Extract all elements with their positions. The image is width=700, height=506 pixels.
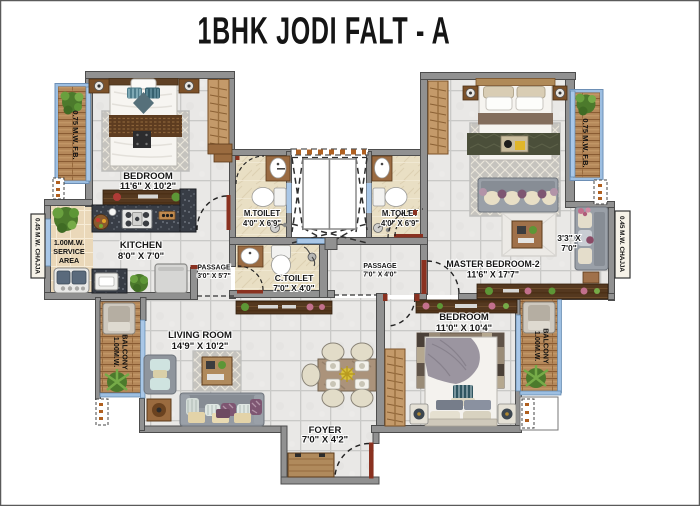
svg-text:M.TOILET: M.TOILET (382, 209, 418, 218)
svg-text:11'6" X 10'2": 11'6" X 10'2" (120, 181, 176, 192)
svg-text:1.00M.W.: 1.00M.W. (54, 238, 84, 247)
svg-text:BALCONY: BALCONY (542, 328, 551, 364)
svg-text:4'0" X 6'9": 4'0" X 6'9" (381, 219, 419, 228)
svg-text:M.TOILET: M.TOILET (244, 209, 280, 218)
svg-text:7'0" X 4'0": 7'0" X 4'0" (363, 272, 397, 279)
svg-text:LIVING ROOM: LIVING ROOM (168, 330, 232, 341)
svg-text:AREA: AREA (59, 256, 79, 265)
svg-text:11'0" X 10'4": 11'0" X 10'4" (436, 323, 492, 334)
svg-text:7'0" X 4'0": 7'0" X 4'0" (273, 283, 314, 293)
svg-text:KITCHEN: KITCHEN (120, 240, 162, 251)
svg-text:4'0" X 6'9": 4'0" X 6'9" (243, 219, 281, 228)
svg-text:BEDROOM: BEDROOM (439, 312, 489, 323)
svg-text:0.75 M.W. F.B.: 0.75 M.W. F.B. (581, 118, 590, 167)
svg-text:3'0" X 5'7": 3'0" X 5'7" (197, 273, 231, 280)
svg-text:11'6" X 17'7": 11'6" X 17'7" (467, 270, 519, 280)
svg-text:1.00M.W.: 1.00M.W. (112, 337, 121, 367)
svg-text:0.45 M.W. CHAJJA: 0.45 M.W. CHAJJA (34, 218, 41, 274)
svg-text:8'0" X 7'0": 8'0" X 7'0" (118, 251, 164, 262)
svg-text:1.00M.W.: 1.00M.W. (533, 331, 542, 361)
svg-text:PASSAGE: PASSAGE (197, 265, 231, 272)
svg-text:0.45 M.W. CHAJJA: 0.45 M.W. CHAJJA (618, 216, 625, 272)
svg-text:C.TOILET: C.TOILET (275, 273, 314, 283)
svg-text:1BHK JODI FALT - A: 1BHK JODI FALT - A (198, 9, 451, 51)
svg-text:7'0": 7'0" (561, 243, 577, 253)
svg-text:SERVICE: SERVICE (53, 247, 85, 256)
svg-text:3'3" X: 3'3" X (557, 233, 581, 243)
svg-text:14'9" X 10'2": 14'9" X 10'2" (172, 341, 229, 352)
svg-text:PASSAGE: PASSAGE (363, 263, 397, 270)
svg-text:7'0" X 4'2": 7'0" X 4'2" (302, 435, 348, 446)
svg-text:MASTER BEDROOM-2: MASTER BEDROOM-2 (446, 259, 539, 269)
svg-text:BALCONY: BALCONY (121, 334, 130, 370)
svg-text:0.75 M.W. F.B.: 0.75 M.W. F.B. (71, 110, 80, 159)
